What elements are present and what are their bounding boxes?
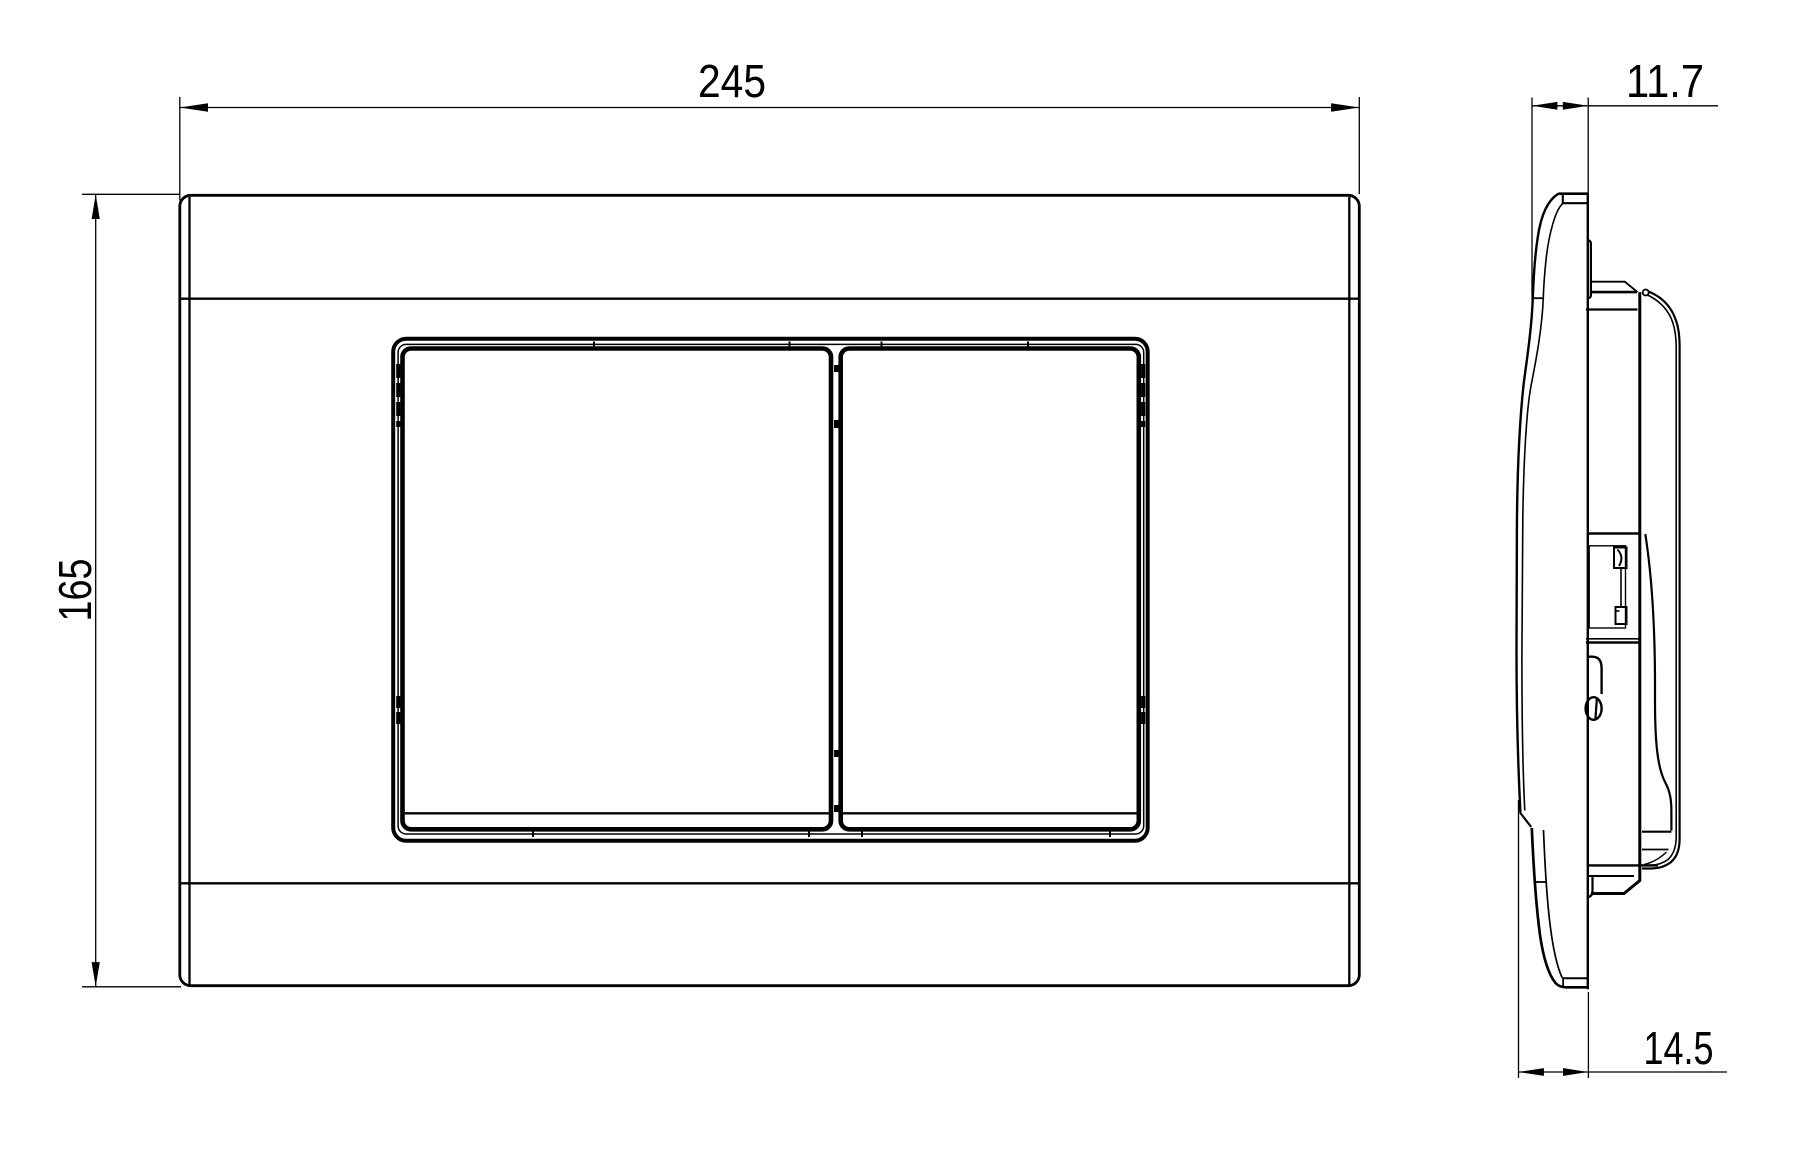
- svg-text:14.5: 14.5: [1644, 1022, 1714, 1074]
- svg-text:11.7: 11.7: [1626, 55, 1704, 107]
- svg-text:245: 245: [698, 55, 766, 107]
- svg-text:165: 165: [49, 559, 101, 622]
